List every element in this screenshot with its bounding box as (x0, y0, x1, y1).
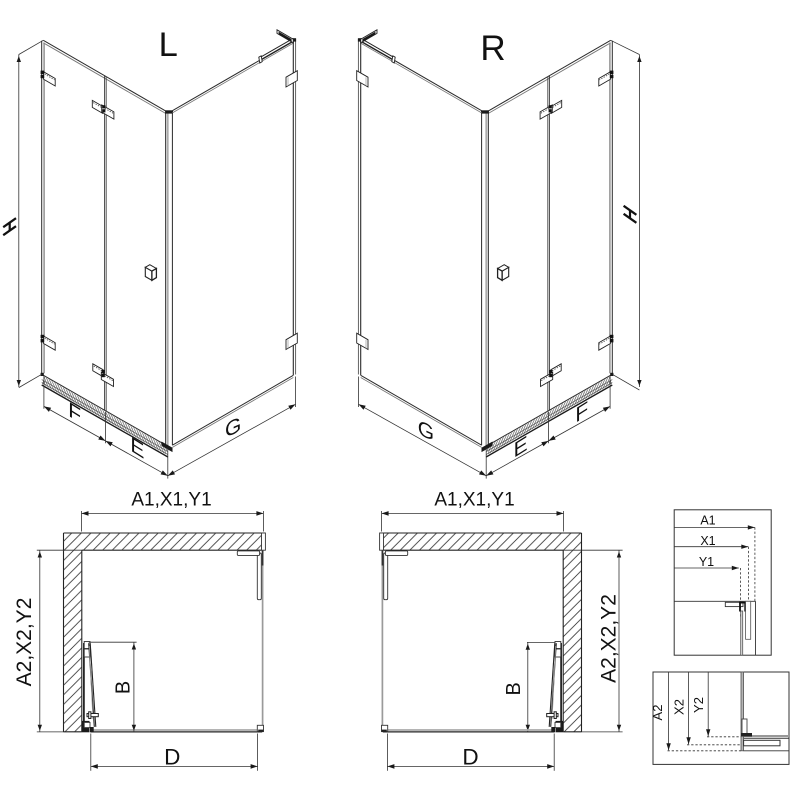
svg-text:A2,X2,Y2: A2,X2,Y2 (597, 594, 620, 683)
svg-text:A1,X1,Y1: A1,X1,Y1 (434, 490, 514, 511)
svg-text:A2: A2 (650, 705, 665, 721)
svg-text:A1,X1,Y1: A1,X1,Y1 (131, 490, 211, 511)
svg-text:A2,X2,Y2: A2,X2,Y2 (13, 598, 36, 687)
svg-text:R: R (480, 29, 505, 68)
svg-text:B: B (503, 682, 525, 695)
svg-text:D: D (164, 744, 180, 769)
svg-text:Y2: Y2 (691, 697, 706, 713)
svg-text:Y1: Y1 (699, 555, 714, 569)
svg-text:X1: X1 (700, 534, 715, 548)
svg-text:X2: X2 (672, 699, 687, 715)
svg-text:D: D (462, 745, 478, 770)
svg-text:L: L (159, 26, 178, 64)
svg-text:A1: A1 (700, 514, 715, 528)
svg-text:B: B (113, 681, 135, 694)
